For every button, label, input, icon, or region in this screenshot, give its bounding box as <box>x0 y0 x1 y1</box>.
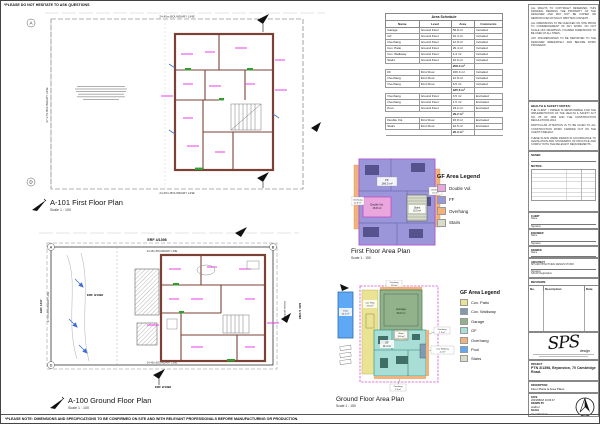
boundary-label-top: 24.45m BOUNDARY LINE <box>147 249 178 253</box>
svg-text:Overhang: Overhang <box>353 198 363 201</box>
legend-swatch-icon <box>437 219 446 227</box>
legend-item: Pool <box>460 346 530 353</box>
legend-swatch-icon <box>460 327 468 334</box>
driveway-hatch <box>135 269 159 315</box>
legend-label: Garage <box>471 319 484 324</box>
grid-bubble-a: A <box>29 21 32 26</box>
revision-body <box>529 291 598 331</box>
plan-title-a101: A-101 First Floor Plan <box>50 198 123 207</box>
stairs-region: Stairs 10.5 m² <box>407 195 427 221</box>
subtotal-row: 26.3 m² <box>386 129 503 135</box>
plan-scale-a101: Scale 1 : 100 <box>50 208 123 212</box>
legend-label: GF <box>471 328 477 333</box>
gf-area-legend: GF Area Legend Cov. PatioCov. WalkwayGar… <box>460 290 530 365</box>
disclaimer-text: ALL DIMENSIONS TO BE CHECKED ON SITE PRI… <box>531 22 596 35</box>
svg-text:Overhang: Overhang <box>394 386 403 388</box>
svg-text:Overhang: Overhang <box>438 329 447 331</box>
legend-swatch-icon <box>460 337 468 344</box>
svg-text:12.8 m²: 12.8 m² <box>354 201 362 204</box>
ff-area-plan-title: First Floor Area Plan <box>351 248 410 255</box>
svg-text:4.4 m²: 4.4 m² <box>440 350 446 353</box>
north-arrow-small <box>340 284 349 291</box>
signed-line <box>531 157 596 162</box>
svg-text:Stairs: Stairs <box>398 332 403 335</box>
hs-text: PARTICULAR ATTENTION IS TO BE GIVEN TO A… <box>531 124 596 134</box>
overhang-strip-right <box>426 330 429 376</box>
legend-item: FF <box>437 196 521 204</box>
svg-text:Cov. Patio: Cov. Patio <box>365 301 375 304</box>
legend-swatch-icon <box>437 207 446 215</box>
column-header: Name <box>386 21 420 28</box>
area-schedule-body: NameLevelAreaCommentsGarageGround Floor5… <box>385 20 503 136</box>
svg-text:166.3 m²: 166.3 m² <box>381 182 392 186</box>
plan-title-a100: A-100 Ground Floor Plan <box>68 396 151 405</box>
stairs-region: Stairs 10.6 m² <box>394 330 408 340</box>
boundary-label-left: 27.17m BOUNDARY LINE <box>46 291 50 322</box>
top-note: *PLEASE DO NOT HESITATE TO ASK QUESTIONS <box>4 3 90 7</box>
garage-region: Garage 59.8 m² <box>380 290 422 330</box>
erf-label-far-left: ERF 1347 <box>39 299 43 313</box>
ff-area-plan-scale: Scale 1 : 150 <box>351 256 410 260</box>
legend-item: GF <box>460 327 530 334</box>
ground-floor-plan-drawing: ERF 4/1398 24.45m BOUNDARY LINE 24.45m B… <box>9 227 314 393</box>
svg-text:29.4 m²: 29.4 m² <box>367 304 374 307</box>
svg-text:A: A <box>50 245 53 249</box>
legend-item: Cov. Walkway <box>460 308 530 315</box>
svg-text:Garage: Garage <box>396 307 406 311</box>
first-floor-area-plan: Stairs 10.5 m² Double Vol. 15.8 m² FF 16… <box>351 157 443 247</box>
north-arrow-icon <box>49 396 65 410</box>
legend-label: Pool <box>471 347 479 352</box>
hs-text: THE CLIENT / OWNER IS RESPONSIBLE FOR TH… <box>531 109 596 122</box>
overhang-right-tag: Overhang 1.5 m² <box>429 327 450 334</box>
cell: 26.3 m² <box>451 129 474 135</box>
engineer-box: ENGINEER Name Signature <box>528 229 599 246</box>
stairs-area: 10.5 m² <box>413 210 421 213</box>
svg-text:Cov. Walkway: Cov. Walkway <box>436 348 448 350</box>
a100-title-block: A-100 Ground Floor Plan Scale 1 : 100 <box>49 396 151 410</box>
ff-label-tag: FF 166.3 m² <box>377 177 397 186</box>
legend-label: Cov. Patio <box>471 300 489 305</box>
legend-item: Stairs <box>437 219 521 227</box>
gf-area-plan-title: Ground Floor Area Plan <box>336 396 404 403</box>
ff-legend-title: GF Area Legend <box>437 174 521 180</box>
contour-lines <box>67 253 89 361</box>
cell <box>419 129 451 135</box>
boundary-label-top: 24.45m BOUNDARY LINE <box>159 15 194 19</box>
legend-label: Stairs <box>449 220 460 225</box>
cell <box>474 129 502 135</box>
column-header: Level <box>419 21 451 28</box>
drainage-note-block <box>75 86 127 100</box>
footer-divider <box>1 414 600 415</box>
legend-item: Cov. Patio <box>460 299 530 306</box>
description-box: DESCRIPTION Floor Plans & Area Plans <box>528 381 599 393</box>
svg-text:59.8 m²: 59.8 m² <box>397 311 406 315</box>
notes-label: NOTES: <box>531 164 596 168</box>
ff-area-legend: GF Area Legend Double Vol.FFOverhangStai… <box>437 174 521 230</box>
legend-swatch-icon <box>460 346 468 353</box>
plan-scale-a100: Scale 1 : 100 <box>68 406 151 410</box>
overhang-top-tag: Overhang 12.8 m² <box>386 280 402 287</box>
drawing-sheet: *PLEASE DO NOT HESITATE TO ASK QUESTIONS… <box>0 0 600 424</box>
paving-hatch <box>137 323 157 345</box>
gf-area-plan-title-block: Ground Floor Area Plan Scale 1 : 150 <box>336 396 404 408</box>
drawer-box: DRAWER Name <box>528 246 599 258</box>
project-value: PTN 3/1398, Bryanston, 70 Cambridge Road… <box>531 366 596 375</box>
cell <box>386 129 420 135</box>
double-vol-region: Double Vol. 15.8 m² <box>363 197 391 217</box>
svg-text:3.5 m²: 3.5 m² <box>395 388 401 391</box>
first-floor-plan-drawing: A D 24.45m BOUNDARY LINE 27.17m BOUNDARY… <box>25 10 331 198</box>
notes-box: SIGNED: NOTES: <box>528 151 599 212</box>
logo-box: SPS design <box>528 332 599 360</box>
client-box: CLIENT Name Signature <box>528 212 599 229</box>
legend-swatch-icon <box>437 196 446 204</box>
revision-box: REVISION No. Description Date <box>528 278 599 332</box>
svg-text:24.2 m²: 24.2 m² <box>342 313 350 316</box>
gf-legend-title: GF Area Legend <box>460 290 530 296</box>
legend-label: Double Vol. <box>449 186 471 191</box>
overhang-left-tag: Overhang 12.8 m² <box>351 197 364 205</box>
logo-contact-line <box>533 354 594 355</box>
disclaimer-box: ALL RIGHTS TO COPYRIGHT RESERVED. THIS D… <box>528 4 599 101</box>
gf-area-plan-scale: Scale 1 : 150 <box>336 404 404 408</box>
svg-text:12.8 m²: 12.8 m² <box>391 284 398 287</box>
notes-table <box>531 169 596 201</box>
svg-text:10.6 m²: 10.6 m² <box>398 335 405 338</box>
double-vol-label: Double Vol. <box>370 203 384 207</box>
bottom-note: *PLEASE NOTE: DIMENSIONS AND SPECIFICATI… <box>5 417 298 421</box>
overhang-strip-bottom <box>374 376 426 379</box>
legend-label: FF <box>449 197 454 202</box>
logo-contact-line <box>539 356 588 357</box>
project-box: PROJECT PTN 3/1398, Bryanston, 70 Cambri… <box>528 360 599 381</box>
hs-title: HEALTH & SAFETY NOTES: <box>531 104 596 108</box>
legend-swatch-icon <box>460 318 468 325</box>
signature-label: Signature <box>531 243 596 245</box>
area-schedule: Area Schedule NameLevelAreaCommentsGarag… <box>385 13 503 136</box>
a101-title-block: A-101 First Floor Plan Scale 1 : 100 <box>31 198 123 212</box>
cov-walkway-region: Cov. Walkway 4.4 m² <box>420 344 454 358</box>
overhang-strip-top <box>380 287 422 290</box>
north-arrow-icon <box>31 198 47 212</box>
architect-box: ARCHITECT SPS ARCHITECTURAL DESIGN STUDI… <box>528 258 599 278</box>
svg-text:1.5 m²: 1.5 m² <box>439 331 445 334</box>
column-header: Comments <box>474 21 502 28</box>
svg-text:Pool: Pool <box>343 310 348 312</box>
health-safety-box: HEALTH & SAFETY NOTES: THE CLIENT / OWNE… <box>528 101 599 151</box>
erf-label-right: ERF 1/1398 <box>298 303 302 319</box>
legend-label: Overhang <box>471 338 489 343</box>
legend-item: Stairs <box>460 355 530 362</box>
svg-text:91.3 m²: 91.3 m² <box>383 345 391 348</box>
ground-floor-area-plan: Pool 24.2 m² Cov. Patio 29.4 m² Garage 5… <box>334 280 460 394</box>
disclaimer-text: ANY DISCREPANCIES TO BE REPORTED TO THE … <box>531 37 596 47</box>
legend-item: Garage <box>460 318 530 325</box>
erf-label-top: ERF 4/1398 <box>147 238 166 242</box>
double-vol-area: 15.8 m² <box>373 206 382 210</box>
sacap-label: SACAP Registration: <box>531 273 596 275</box>
legend-label: Overhang <box>449 209 468 214</box>
svg-text:D: D <box>50 363 53 367</box>
pool-region: Pool 24.2 m² <box>338 292 353 338</box>
area-schedule-grid: NameLevelAreaCommentsGarageGround Floor5… <box>385 20 503 136</box>
loungers <box>340 345 351 364</box>
legend-item: Overhang <box>460 337 530 344</box>
description-value: Floor Plans & Area Plans <box>531 387 596 391</box>
legend-label: Cov. Walkway <box>471 309 496 314</box>
legend-item: Double Vol. <box>437 184 521 192</box>
erf-label-bottom: ERF 2/1398 <box>155 385 171 389</box>
disclaimer-text: ALL RIGHTS TO COPYRIGHT RESERVED. THIS D… <box>531 7 596 20</box>
area-schedule-title: Area Schedule <box>385 13 503 20</box>
hs-text: THESE PLANS WERE DRAWN IN ACCORDANCE TO … <box>531 137 596 147</box>
svg-text:B: B <box>272 245 275 249</box>
legend-swatch-icon <box>460 308 468 315</box>
svg-text:Overhang: Overhang <box>390 282 399 284</box>
legend-swatch-icon <box>460 299 468 306</box>
grid-bubble-d: D <box>29 180 33 185</box>
legend-label: Stairs <box>471 356 481 361</box>
overhang-bottom-tag: Overhang 3.5 m² <box>390 379 406 391</box>
column-header: Area <box>451 21 474 28</box>
boundary-label-left: 27.17m BOUNDARY LINE <box>45 87 49 122</box>
boundary-label-bottom: 24.45m BOUNDARY LINE <box>159 191 194 195</box>
legend-swatch-icon <box>437 184 446 192</box>
legend-swatch-icon <box>460 355 468 362</box>
signature-label: Signature <box>531 226 596 228</box>
erf-label-left: ERF 3/1398 <box>87 293 103 297</box>
building-outline <box>161 255 265 361</box>
legend-item: Overhang <box>437 207 521 215</box>
ff-area-plan-title-block: First Floor Area Plan Scale 1 : 150 <box>351 248 410 260</box>
